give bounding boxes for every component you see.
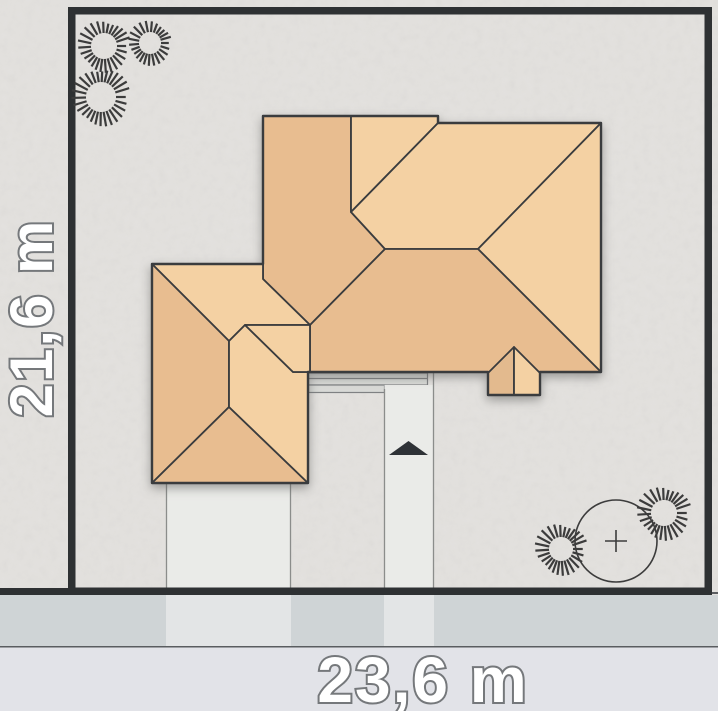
plot-height-label: 21,6 m — [0, 219, 65, 418]
plot-width-label: 23,6 m — [317, 644, 528, 711]
site-plan-drawing: 23,6 m 21,6 m — [0, 0, 718, 711]
site-plan: 23,6 m 21,6 m — [0, 0, 718, 711]
